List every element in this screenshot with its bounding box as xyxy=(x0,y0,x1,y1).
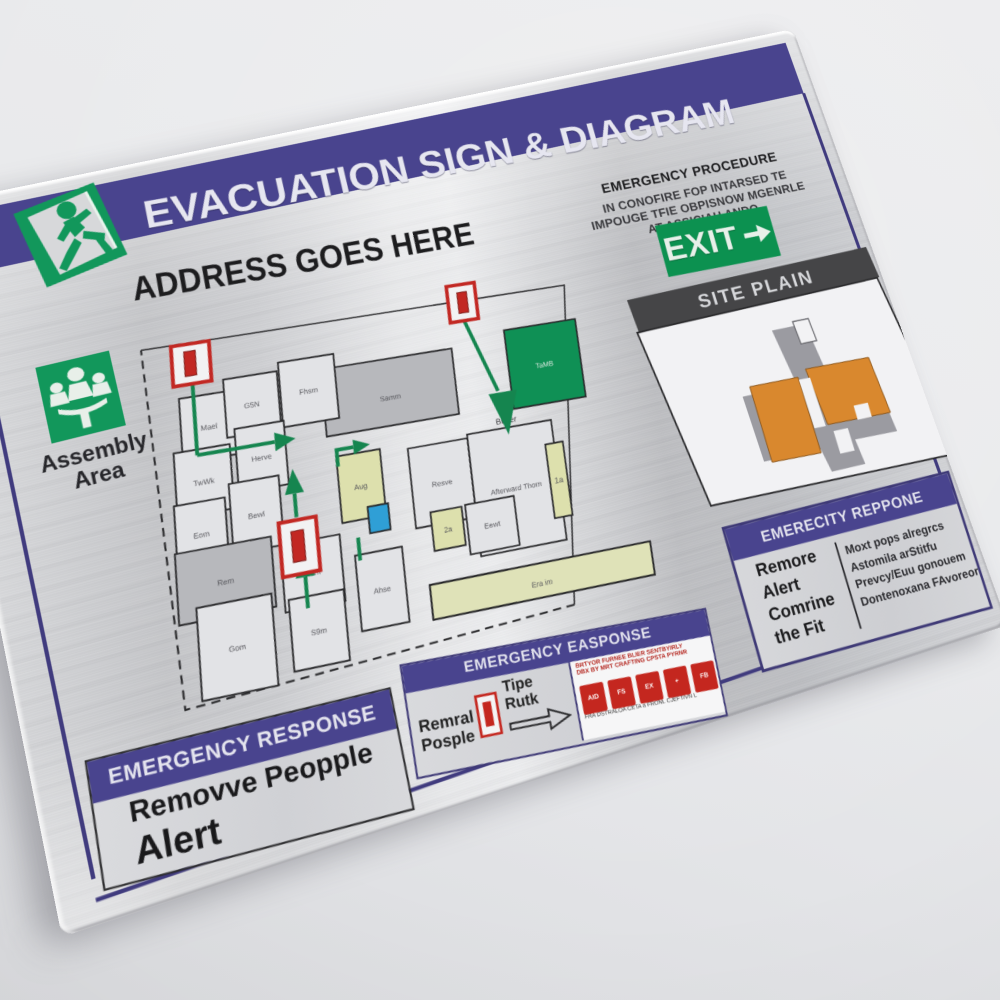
svg-text:1a: 1a xyxy=(554,474,564,486)
